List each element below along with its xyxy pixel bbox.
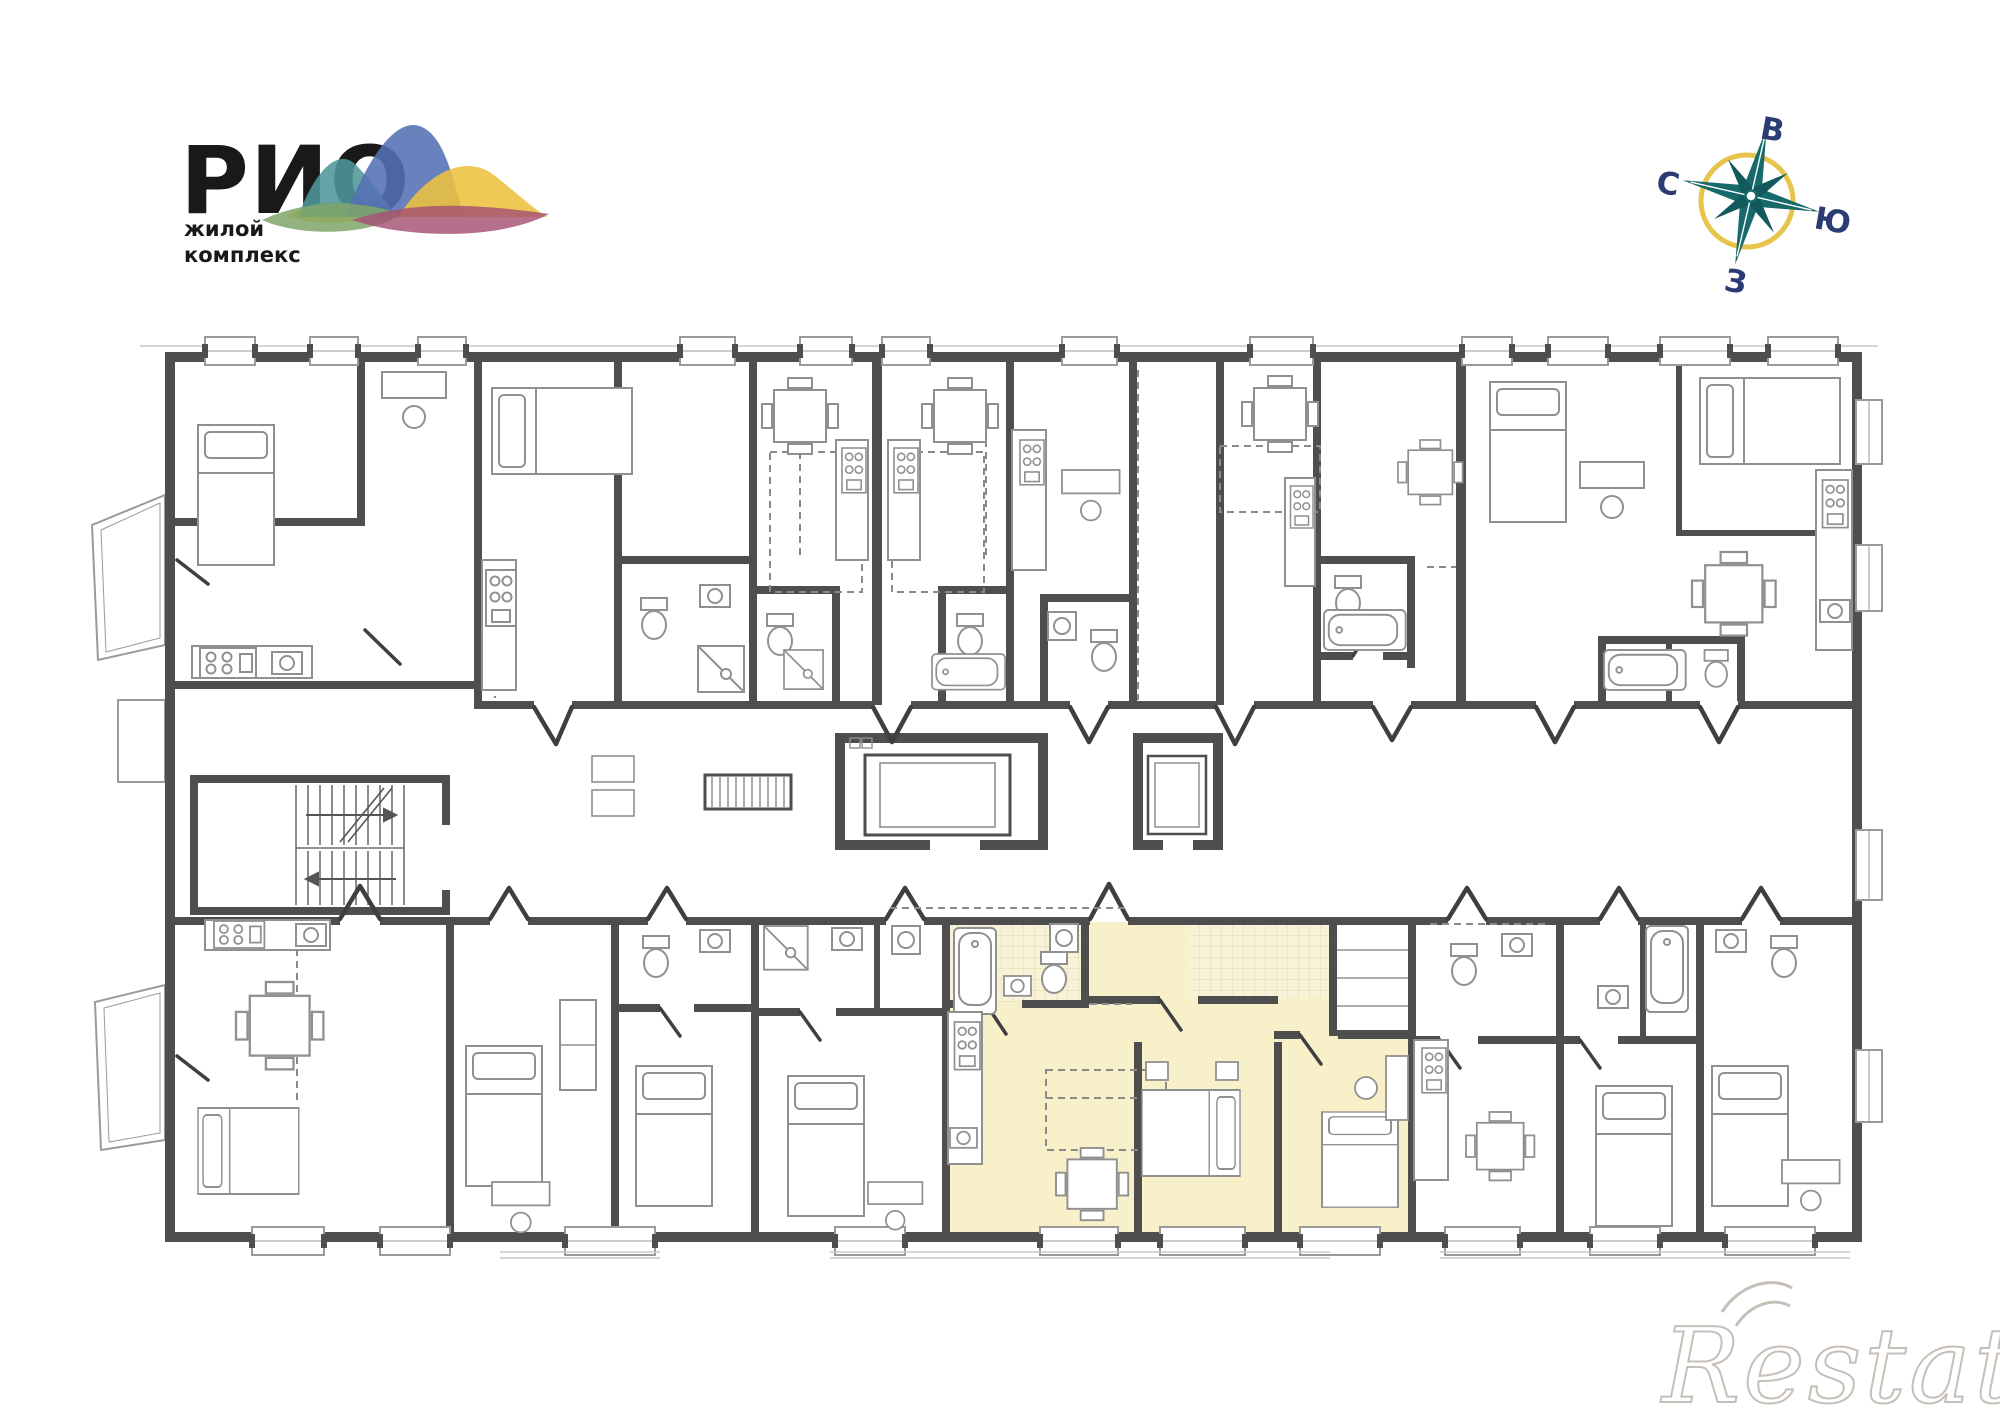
compass-label-north: С bbox=[1654, 164, 1683, 203]
chair-icon bbox=[1355, 1077, 1377, 1099]
stove-icon bbox=[894, 448, 918, 493]
sink-icon bbox=[1004, 976, 1031, 996]
compass-star-icon bbox=[1667, 112, 1835, 280]
developer-logo: РИО жилой комплекс bbox=[180, 125, 549, 267]
watermark: Restate bbox=[1660, 1283, 2000, 1413]
sink-icon bbox=[832, 928, 862, 950]
watermark-text: Restate bbox=[1660, 1305, 2000, 1413]
shower-icon bbox=[698, 646, 744, 692]
sink-icon bbox=[700, 930, 730, 952]
shower-icon bbox=[764, 926, 808, 970]
balconies bbox=[92, 495, 165, 1150]
toilet-icon bbox=[957, 614, 983, 655]
table-icon bbox=[236, 982, 323, 1069]
table-icon bbox=[1692, 552, 1776, 636]
floor-plan bbox=[92, 337, 1882, 1258]
bathtub-icon bbox=[1604, 650, 1686, 690]
bed-icon bbox=[636, 1066, 712, 1206]
table-icon bbox=[922, 378, 998, 454]
floorplan-page: РИО жилой комплекс bbox=[0, 0, 2000, 1413]
logo-subtitle-line2: комплекс bbox=[184, 243, 301, 267]
stove-icon bbox=[200, 648, 256, 678]
bathtub-icon bbox=[1646, 926, 1688, 1012]
bathtub-icon bbox=[932, 654, 1005, 690]
sink-icon bbox=[700, 585, 730, 607]
bed-icon bbox=[1142, 1090, 1240, 1176]
sink-icon bbox=[272, 652, 302, 674]
nightstand bbox=[1216, 1062, 1238, 1080]
compass-label-south: Ю bbox=[1812, 200, 1854, 242]
bed-icon bbox=[1700, 378, 1840, 464]
toilet-icon bbox=[1705, 650, 1728, 687]
toilet-icon bbox=[1091, 630, 1117, 671]
toilet-icon bbox=[1041, 952, 1067, 993]
stove-icon bbox=[842, 448, 866, 493]
bed-icon bbox=[1490, 382, 1566, 522]
bed-icon bbox=[788, 1076, 864, 1216]
nightstand bbox=[1146, 1062, 1168, 1080]
bed-icon bbox=[1596, 1086, 1672, 1226]
stove-icon bbox=[1422, 1048, 1446, 1093]
stove-icon bbox=[214, 921, 264, 948]
washing-machine-icon bbox=[1048, 612, 1076, 640]
shower-icon bbox=[784, 650, 823, 689]
sink-icon bbox=[1598, 986, 1628, 1008]
sink-icon bbox=[296, 924, 326, 946]
compass-rose: В Ю З С bbox=[1654, 110, 1854, 301]
sink-icon bbox=[1820, 600, 1850, 622]
bed-icon bbox=[492, 388, 632, 474]
bed-icon bbox=[198, 425, 274, 565]
compass-label-west: З bbox=[1722, 262, 1750, 301]
washing-machine-icon bbox=[892, 926, 920, 954]
bathtub-icon bbox=[1324, 610, 1406, 650]
bathtub-icon bbox=[954, 928, 996, 1014]
table-icon bbox=[1056, 1148, 1128, 1220]
stove-icon bbox=[955, 1022, 981, 1070]
desk-icon bbox=[1386, 1056, 1408, 1120]
toilet-icon bbox=[1771, 936, 1797, 977]
table-icon bbox=[1398, 440, 1463, 505]
selected-apartment-hall-tiles bbox=[1190, 922, 1331, 998]
sink-icon bbox=[950, 1128, 977, 1148]
table-icon bbox=[1466, 1112, 1534, 1180]
toilet-icon bbox=[643, 936, 669, 977]
logo-subtitle-line1: жилой bbox=[184, 217, 264, 241]
bed-icon bbox=[198, 1108, 299, 1194]
bed-icon bbox=[466, 1046, 542, 1186]
toilet-icon bbox=[767, 614, 793, 655]
table-icon bbox=[762, 378, 838, 454]
bed-icon bbox=[1712, 1066, 1788, 1206]
toilet-icon bbox=[641, 598, 667, 639]
table-icon bbox=[1242, 376, 1318, 452]
compass-label-east: В bbox=[1758, 110, 1788, 150]
toilet-icon bbox=[1451, 944, 1477, 985]
stove-icon bbox=[1020, 440, 1044, 485]
washing-machine-icon bbox=[1050, 924, 1078, 952]
stove-icon bbox=[1291, 486, 1314, 528]
stove-icon bbox=[486, 570, 516, 626]
sink-icon bbox=[1502, 934, 1532, 956]
stove-icon bbox=[1823, 480, 1849, 528]
sink-icon bbox=[1716, 930, 1746, 952]
selected-apartment-closet bbox=[1333, 922, 1410, 1030]
bed-icon bbox=[1322, 1112, 1398, 1207]
